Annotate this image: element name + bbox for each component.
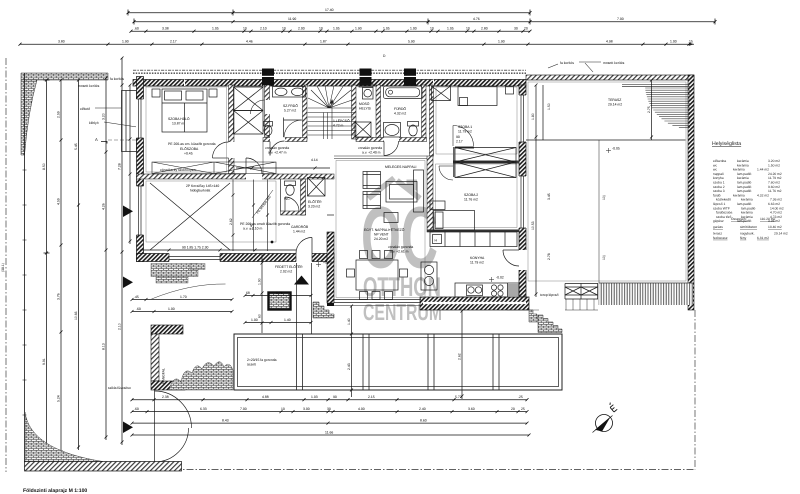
- svg-text:11.66: 11.66: [325, 431, 333, 435]
- svg-text:+0.45: +0.45: [184, 152, 193, 156]
- svg-text:2.75: 2.75: [647, 106, 651, 113]
- svg-text:1.90: 1.90: [258, 278, 262, 285]
- svg-text:11.76 m2: 11.76 m2: [768, 189, 782, 193]
- svg-text:1.50 m2: 1.50 m2: [768, 163, 780, 167]
- svg-text:Helyiséglista: Helyiséglista: [712, 141, 741, 147]
- svg-text:4.00: 4.00: [358, 407, 365, 411]
- svg-text:17.40: 17.40: [325, 8, 334, 12]
- svg-text:1.40: 1.40: [284, 318, 291, 322]
- svg-text:1.87: 1.87: [320, 40, 327, 44]
- svg-text:11.76 m2: 11.76 m2: [464, 198, 478, 202]
- svg-text:1.40: 1.40: [347, 318, 351, 325]
- svg-text:10.53: 10.53: [531, 221, 535, 230]
- svg-text:4.72 m: 4.72 m: [333, 124, 344, 128]
- svg-text:3.38: 3.38: [162, 27, 169, 31]
- svg-text:2.78: 2.78: [547, 253, 551, 260]
- svg-text:FÜRDŐ: FÜRDŐ: [394, 107, 406, 111]
- svg-text:10: 10: [281, 407, 285, 411]
- svg-text:29.14 m2: 29.14 m2: [608, 103, 622, 107]
- svg-text:1.00: 1.00: [168, 307, 175, 311]
- svg-text:18.40 m2: 18.40 m2: [768, 225, 782, 229]
- svg-text:1.50: 1.50: [547, 103, 551, 110]
- svg-text:2.17: 2.17: [456, 139, 463, 143]
- svg-text:4.76: 4.76: [473, 17, 480, 21]
- svg-text:.60: .60: [134, 27, 139, 31]
- svg-text:SZOBA HÁLÓ: SZOBA HÁLÓ: [168, 117, 190, 121]
- svg-text:20: 20: [511, 407, 515, 411]
- svg-text:5.24: 5.24: [57, 395, 61, 402]
- svg-text:WC: WC: [284, 197, 290, 201]
- svg-text:11.90: 11.90: [288, 17, 296, 21]
- svg-text:4.14: 4.14: [311, 158, 318, 162]
- svg-text:ácsolt: ácsolt: [247, 363, 256, 367]
- svg-text:7.28: 7.28: [118, 163, 122, 170]
- svg-text:60: 60: [258, 314, 262, 318]
- svg-text:1.00: 1.00: [410, 27, 417, 31]
- svg-text:(38.1): (38.1): [1, 263, 5, 272]
- svg-text:2.00: 2.00: [298, 27, 305, 31]
- svg-text:3.20 m2: 3.20 m2: [308, 205, 320, 209]
- svg-text:a.v. +2.40 m: a.v. +2.40 m: [362, 151, 381, 155]
- svg-text:1.LÉPCSŐ: 1.LÉPCSŐ: [333, 119, 350, 123]
- svg-text:3.20: 3.20: [102, 113, 106, 120]
- svg-text:1.00: 1.00: [670, 40, 677, 44]
- svg-text:HANGFAL: HANGFAL: [162, 368, 166, 384]
- svg-text:ejtozóka-ify szekrénysor: ejtozóka-ify szekrénysor: [160, 168, 197, 172]
- svg-text:6.81 m2: 6.81 m2: [757, 236, 769, 240]
- svg-text:9.91: 9.91: [42, 358, 46, 365]
- svg-text:5.45: 5.45: [74, 143, 78, 150]
- svg-text:a.v. +2.47 m: a.v. +2.47 m: [268, 151, 287, 155]
- svg-text:10: 10: [430, 27, 434, 31]
- svg-text:fény: fény: [740, 236, 747, 240]
- svg-text:HELYIS: HELYIS: [359, 106, 372, 110]
- svg-text:előtető: előtető: [80, 107, 90, 111]
- svg-text:3.45: 3.45: [547, 193, 551, 200]
- svg-text:.25: .25: [518, 395, 523, 399]
- svg-text:8.43: 8.43: [222, 419, 229, 423]
- svg-text:6.33: 6.33: [200, 407, 207, 411]
- svg-text:68: 68: [246, 291, 250, 295]
- svg-text:3.80: 3.80: [58, 40, 65, 44]
- svg-text:2×20/15 fa gerenda: 2×20/15 fa gerenda: [247, 358, 277, 362]
- svg-text:2.62: 2.62: [229, 218, 233, 225]
- svg-text:+0.00: +0.00: [323, 261, 332, 265]
- svg-text:10: 10: [466, 27, 470, 31]
- svg-text:1.90: 1.90: [122, 40, 129, 44]
- svg-text:1.71: 1.71: [276, 291, 283, 295]
- svg-text:5.72: 5.72: [455, 395, 462, 399]
- svg-text:vonalán geonda: vonalán geonda: [265, 146, 289, 150]
- svg-text:20: 20: [524, 27, 528, 31]
- svg-text:.15: .15: [688, 40, 693, 44]
- svg-text:10.66: 10.66: [74, 311, 78, 320]
- svg-text:FEDETT ELŐTÉR: FEDETT ELŐTÉR: [275, 265, 303, 269]
- svg-text:terep lépcső: terep lépcső: [540, 293, 559, 297]
- svg-text:.60: .60: [136, 307, 141, 311]
- svg-text:13.87 m: 13.87 m: [172, 122, 184, 126]
- svg-text:1.05: 1.05: [383, 27, 390, 31]
- svg-text:ELŐSZOBA: ELŐSZOBA: [180, 147, 199, 151]
- svg-text:1.03: 1.03: [311, 395, 318, 399]
- svg-text:5.90: 5.90: [408, 40, 415, 44]
- svg-text:10: 10: [282, 27, 286, 31]
- svg-text:4.88: 4.88: [262, 395, 269, 399]
- svg-text:.60: .60: [134, 407, 139, 411]
- svg-text:vonalán geonda: vonalán geonda: [358, 146, 382, 150]
- svg-text:PE 200-as em. küszöb gerenda: PE 200-as em. küszöb gerenda: [168, 142, 216, 146]
- svg-text:30: 30: [514, 27, 518, 31]
- svg-text:1.05: 1.05: [447, 27, 454, 31]
- svg-text:2P KocsiSzy 145×140: 2P KocsiSzy 145×140: [186, 184, 219, 188]
- svg-text:11.79 m2: 11.79 m2: [470, 261, 484, 265]
- svg-text:4.98: 4.98: [606, 40, 613, 44]
- svg-text:1.90: 1.90: [355, 27, 362, 31]
- svg-text:SZOBA 1: SZOBA 1: [458, 125, 472, 129]
- svg-text:hidegburkolat: hidegburkolat: [190, 189, 210, 193]
- svg-text:mosott kerítés: mosott kerítés: [78, 84, 100, 88]
- svg-text:mosott kerítés: mosott kerítés: [603, 61, 625, 65]
- svg-text:4.59: 4.59: [57, 198, 61, 205]
- svg-text:1.05: 1.05: [333, 27, 340, 31]
- svg-text:1.05: 1.05: [212, 27, 219, 31]
- svg-text:.45: .45: [134, 295, 139, 299]
- svg-text:3.00: 3.00: [303, 407, 310, 411]
- svg-text:1.44 m2: 1.44 m2: [293, 229, 305, 233]
- svg-text:SZOBA 2: SZOBA 2: [464, 193, 478, 197]
- svg-text:4.46: 4.46: [246, 40, 253, 44]
- svg-text:TERASZ: TERASZ: [608, 98, 621, 102]
- svg-text:4.32 m2: 4.32 m2: [394, 112, 406, 116]
- svg-text:1.40: 1.40: [249, 223, 253, 230]
- svg-text:A: A: [95, 137, 98, 142]
- svg-text:KONYHA: KONYHA: [470, 256, 485, 260]
- svg-text:NP VENT: NP VENT: [374, 233, 389, 237]
- svg-text:2.15: 2.15: [368, 395, 375, 399]
- svg-text:-0.02: -0.02: [496, 276, 504, 280]
- svg-text:2.38: 2.38: [162, 395, 169, 399]
- svg-text:2.02 m2: 2.02 m2: [280, 270, 292, 274]
- svg-text:10: 10: [319, 27, 323, 31]
- svg-text:Földszinti alaprajz M 1:100: Földszinti alaprajz M 1:100: [23, 488, 87, 494]
- svg-text:4.26: 4.26: [102, 203, 106, 210]
- svg-text:2.17: 2.17: [170, 40, 177, 44]
- svg-text:2.10: 2.10: [260, 27, 267, 31]
- svg-text:1.70: 1.70: [180, 295, 187, 299]
- svg-text:29.14 m2: 29.14 m2: [774, 232, 788, 236]
- svg-text:kifolyó: kifolyó: [89, 121, 99, 125]
- svg-text:8.60: 8.60: [420, 419, 427, 423]
- svg-text:8.50: 8.50: [42, 163, 46, 170]
- svg-text:10: 10: [243, 27, 247, 31]
- svg-text:simítóbeton: simítóbeton: [740, 225, 757, 229]
- svg-text:2.10: 2.10: [118, 323, 122, 330]
- svg-text:90: 90: [333, 395, 337, 399]
- svg-text:2.62: 2.62: [458, 353, 462, 360]
- svg-text:2.43: 2.43: [347, 363, 351, 370]
- svg-text:-0.05: -0.05: [612, 147, 620, 151]
- svg-text:4.32 m2: 4.32 m2: [757, 193, 769, 197]
- svg-text:SZ.FRDŐ: SZ.FRDŐ: [283, 104, 298, 108]
- svg-text:25: 25: [521, 407, 525, 411]
- svg-text:5.27 m2: 5.27 m2: [284, 109, 296, 113]
- svg-text:2.80: 2.80: [481, 27, 488, 31]
- svg-text:Összesen:: Összesen:: [731, 217, 747, 221]
- svg-text:3.76: 3.76: [57, 293, 61, 300]
- svg-text:1.90: 1.90: [498, 40, 505, 44]
- svg-text:10j: 10j: [602, 195, 606, 200]
- svg-text:11.79 m2: 11.79 m2: [458, 130, 472, 134]
- svg-text:30: 30: [327, 407, 331, 411]
- svg-text:10j: 10j: [602, 255, 606, 260]
- svg-text:PE 200-as emelt küszöb gerenda: PE 200-as emelt küszöb gerenda: [240, 222, 290, 226]
- svg-text:90 1.85 1.75 2.30: 90 1.85 1.75 2.30: [182, 246, 209, 250]
- svg-text:ELŐTÉR: ELŐTÉR: [308, 200, 322, 204]
- svg-text:MELEGES NAPPALI: MELEGES NAPPALI: [385, 165, 416, 169]
- svg-text:1.80: 1.80: [531, 113, 535, 120]
- svg-text:EGYT. NAPPALI+ÉTKEZŐ: EGYT. NAPPALI+ÉTKEZŐ: [364, 228, 405, 232]
- svg-text:3.60: 3.60: [468, 407, 475, 411]
- svg-text:gépész: gépész: [713, 219, 724, 223]
- svg-text:110.28 m2: 110.28 m2: [760, 217, 776, 221]
- svg-text:fa kerítés: fa kerítés: [110, 77, 124, 81]
- svg-text:8.13: 8.13: [102, 343, 106, 350]
- svg-text:garázs: garázs: [713, 225, 723, 229]
- svg-text:7.00: 7.00: [617, 17, 624, 21]
- svg-text:fa kerítés: fa kerítés: [560, 61, 574, 65]
- svg-text:fed.terasz: fed.terasz: [713, 236, 728, 240]
- svg-text:2.59: 2.59: [57, 111, 61, 118]
- svg-text:24.20 m2: 24.20 m2: [374, 237, 388, 241]
- svg-text:2.40: 2.40: [419, 407, 426, 411]
- svg-text:7.00: 7.00: [240, 407, 247, 411]
- svg-text:szikla füvesítve: szikla füvesítve: [108, 386, 131, 390]
